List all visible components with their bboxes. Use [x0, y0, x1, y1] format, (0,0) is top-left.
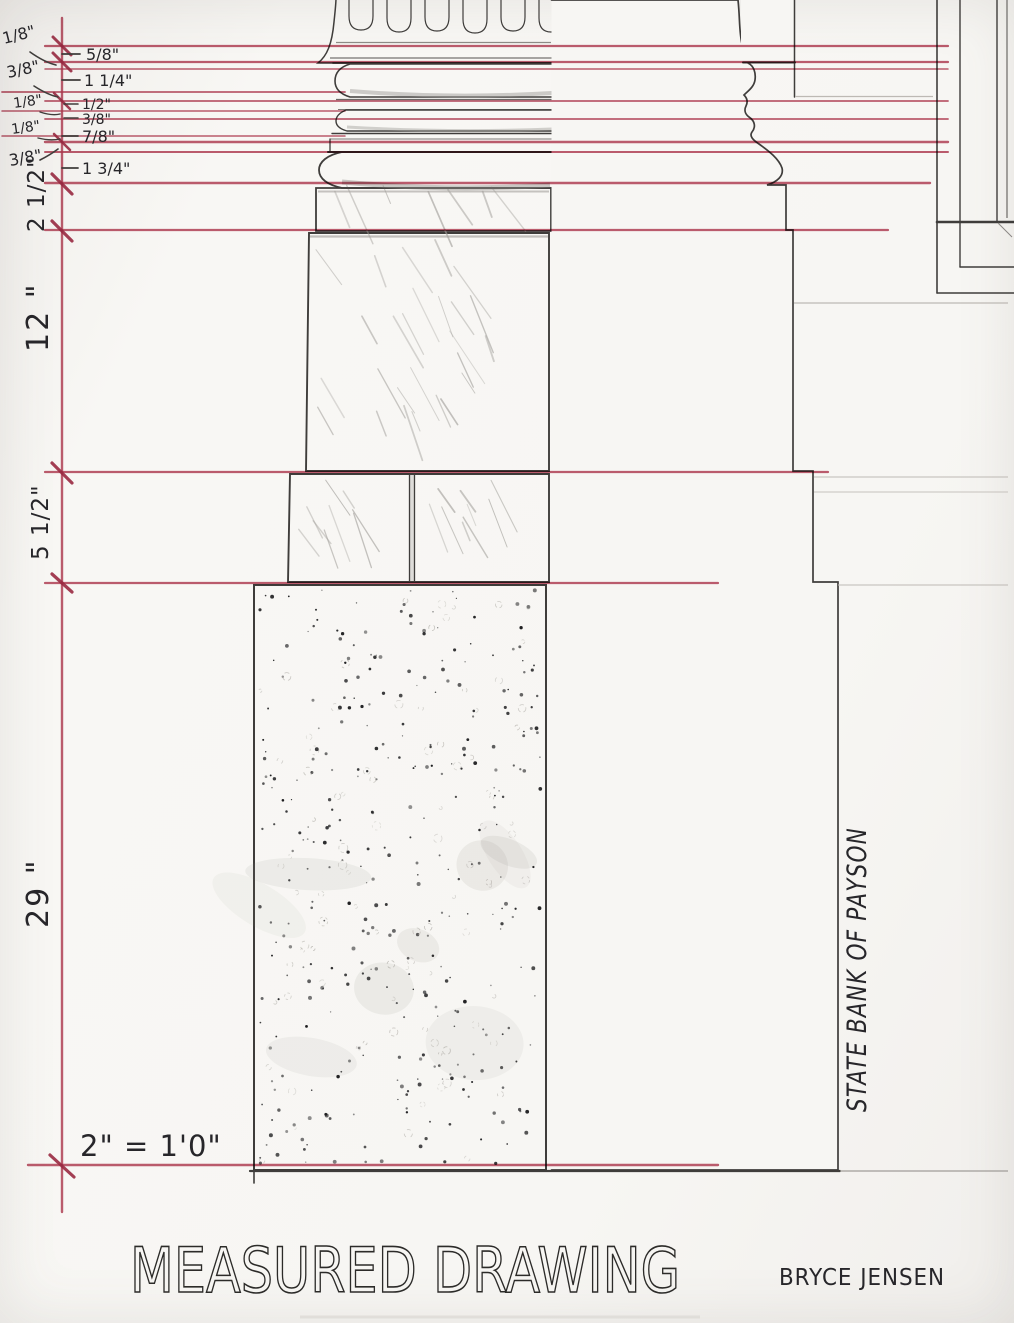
measured-drawing-sheet: 1/8" 3/8" 1/8" 1/8" 3/8" 5/8" 1 1/4" 1/2… [0, 0, 1014, 1323]
bed-mould-block [741, 0, 795, 62]
dim-label-molding-4: 7/8" [82, 127, 115, 146]
dim-label-molding-1: 1 1/4" [84, 71, 132, 90]
window-frame-corner [937, 0, 1014, 293]
dim-label-course-2: 5 1/2" [28, 484, 54, 560]
wall-section-hatch [552, 0, 839, 1170]
course-block-5in [288, 474, 549, 582]
dim-label-molding-2: 1/2" [82, 97, 111, 113]
course-block-12in [306, 233, 549, 471]
sheet-title: MEASURED DRAWING [130, 1234, 680, 1307]
drawing-canvas: 1/8" 3/8" 1/8" 1/8" 3/8" 5/8" 1 1/4" 1/2… [0, 0, 1014, 1323]
author-name: BRYCE JENSEN [779, 1265, 945, 1291]
dim-label-course-1: 12 " [21, 282, 56, 352]
dim-label-course-0: 2 1/2" [24, 156, 50, 232]
building-name: STATE BANK OF PAYSON [842, 827, 873, 1112]
dim-label-molding-5: 1 3/4" [82, 159, 130, 178]
dim-label-offset-1: 3/8" [5, 56, 41, 81]
dim-label-course-3: 29 " [21, 858, 56, 928]
dim-label-molding-0: 5/8" [86, 45, 119, 64]
dim-label-offset-0: 1/8" [0, 21, 37, 47]
dim-label-offset-2: 1/8" [12, 92, 43, 112]
scale-note: 2" = 1'0" [80, 1129, 222, 1163]
column-flutes [349, 0, 563, 33]
dim-label-offset-3: 1/8" [10, 118, 41, 138]
dim-label-molding-3: 3/8" [82, 112, 111, 128]
stone-courses [203, 185, 551, 1183]
column-base-moldings [318, 0, 563, 188]
